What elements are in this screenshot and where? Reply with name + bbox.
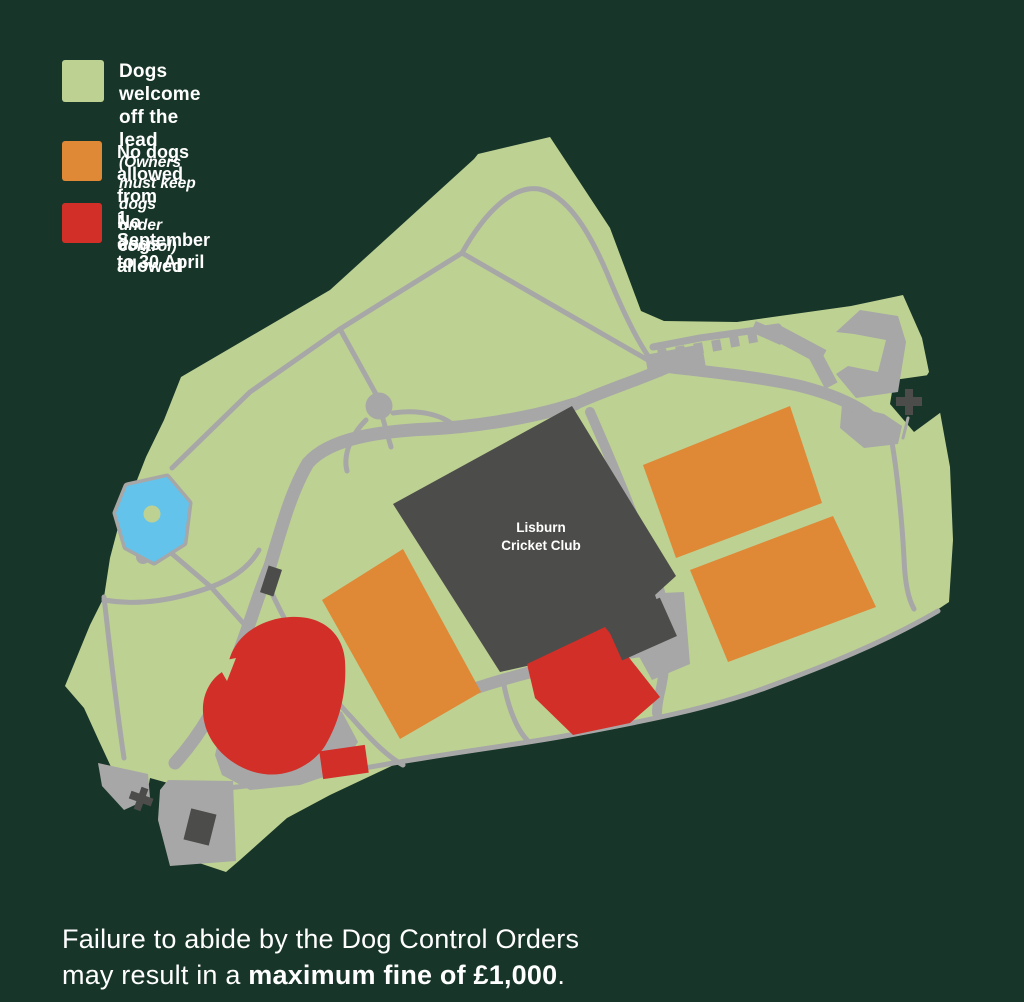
footer-line2-end: . (557, 960, 565, 990)
legend-label: Dogs welcome off the lead (119, 60, 201, 152)
footer-line2-bold: maximum fine of £1,000 (248, 960, 557, 990)
venue-label-line1: Lisburn (516, 520, 566, 535)
venue-label-line2: Cricket Club (501, 538, 581, 553)
legend-label: No dogs allowed from (117, 141, 210, 207)
dog-control-map-page: Lisburn Cricket Club Dogs welcome off th… (0, 0, 1024, 1002)
housing-tooth (657, 348, 668, 360)
footer-warning: Failure to abide by the Dog Control Orde… (62, 921, 579, 993)
footer-line2-normal: may result in a (62, 960, 248, 990)
legend-label: No dogs allowed (117, 211, 183, 277)
pond-island (144, 506, 161, 523)
footer-line1: Failure to abide by the Dog Control Orde… (62, 921, 579, 957)
legend-swatch-green (62, 60, 104, 102)
housing-tooth (675, 345, 686, 357)
housing-tooth (693, 342, 704, 354)
footer-line2: may result in a maximum fine of £1,000. (62, 957, 579, 993)
legend-item-no-dogs: No dogs allowed (62, 203, 183, 277)
legend-swatch-red (62, 203, 102, 243)
housing-tooth (711, 339, 722, 351)
legend-swatch-orange (62, 141, 102, 181)
